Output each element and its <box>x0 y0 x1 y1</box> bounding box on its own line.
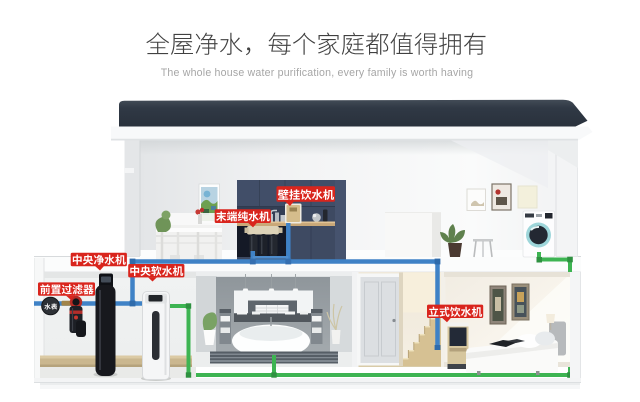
svg-text:The whole house water purifica: The whole house water purification, ever… <box>161 67 474 79</box>
